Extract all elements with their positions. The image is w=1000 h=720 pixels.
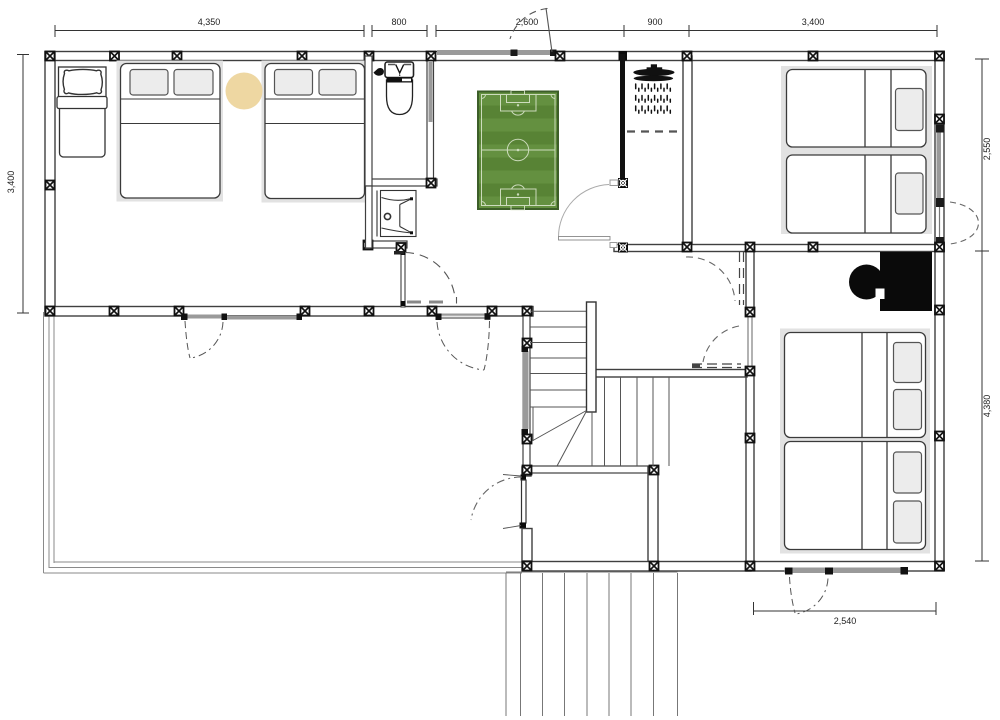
svg-text:2,550: 2,550 — [982, 138, 992, 161]
svg-text:900: 900 — [647, 17, 662, 27]
svg-text:4,350: 4,350 — [198, 17, 221, 27]
svg-text:3,400: 3,400 — [6, 171, 16, 194]
svg-text:3,400: 3,400 — [802, 17, 825, 27]
svg-text:2,600: 2,600 — [516, 17, 539, 27]
svg-text:4,380: 4,380 — [982, 395, 992, 418]
svg-text:2,540: 2,540 — [834, 616, 857, 626]
svg-text:800: 800 — [391, 17, 406, 27]
